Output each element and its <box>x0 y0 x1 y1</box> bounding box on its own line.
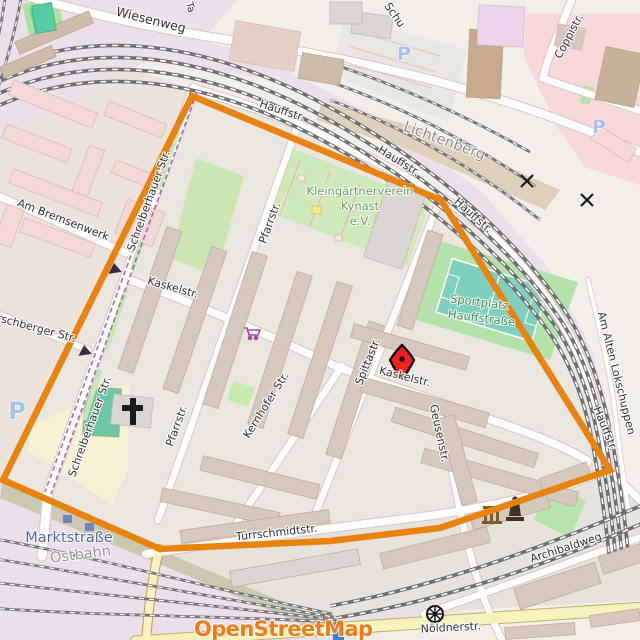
map-viewport[interactable]: WiesenwegHauffstr.Hauffstr.Hauffstr.Hauf… <box>0 0 640 640</box>
parking-icon: P <box>8 397 26 425</box>
map-canvas: WiesenwegHauffstr.Hauffstr.Hauffstr.Hauf… <box>0 0 640 640</box>
wheel-icon <box>427 606 443 622</box>
area-label-kleingarten-1: Kleingärtnerverein <box>307 184 414 198</box>
parking-icon: P <box>397 43 411 65</box>
osm-attribution-wordmark: OpenStreetMap <box>194 617 373 640</box>
area-label-kleingarten-3: e.V. <box>350 214 371 228</box>
parking-icon: P <box>592 116 606 138</box>
station-label-marktstrasse: Marktstraße <box>25 530 113 546</box>
area-label-kleingarten-2: Kynast <box>341 199 380 213</box>
